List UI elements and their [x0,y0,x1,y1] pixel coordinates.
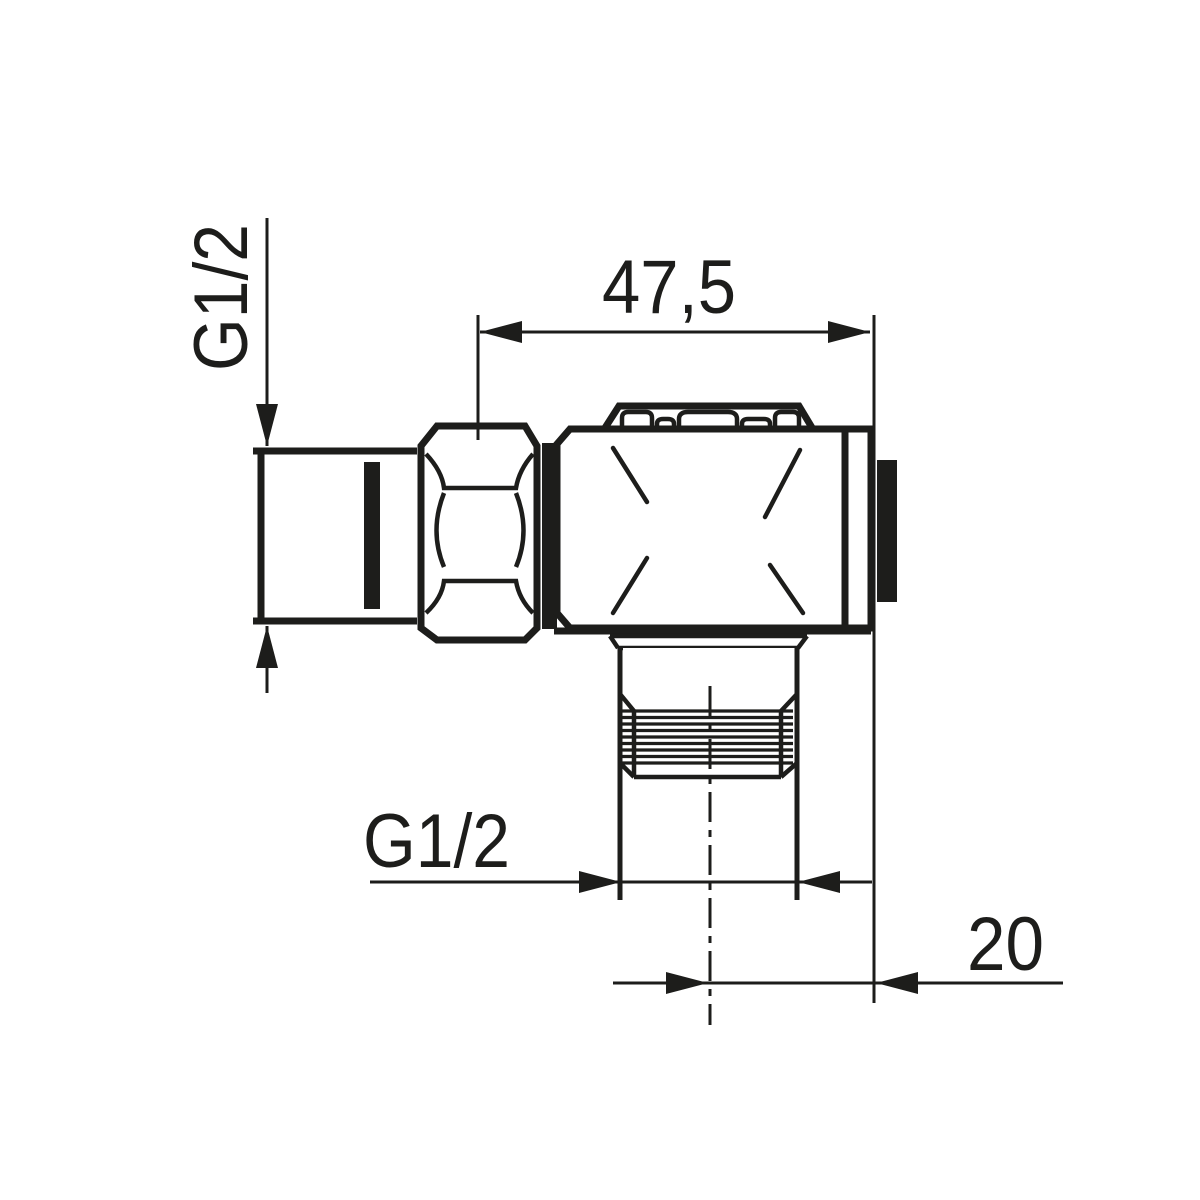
technical-drawing-canvas: G1/2 47,5 G1/2 20 [0,0,1200,1200]
label-outlet-offset: 20 [967,902,1044,987]
label-inlet-thread: G1/2 [179,224,264,371]
seal-band [364,462,380,609]
wall-seal-block [877,460,897,602]
inlet-pipe [253,448,417,624]
valve-body [554,429,871,631]
right-cap [845,429,871,628]
outlet-flange [610,636,807,648]
label-overall-width: 47,5 [602,245,736,330]
union-nut [421,426,537,640]
thread-lines [621,711,793,763]
fitting-drawing: G1/2 47,5 G1/2 20 [0,0,1200,1200]
label-outlet-thread: G1/2 [363,799,510,884]
